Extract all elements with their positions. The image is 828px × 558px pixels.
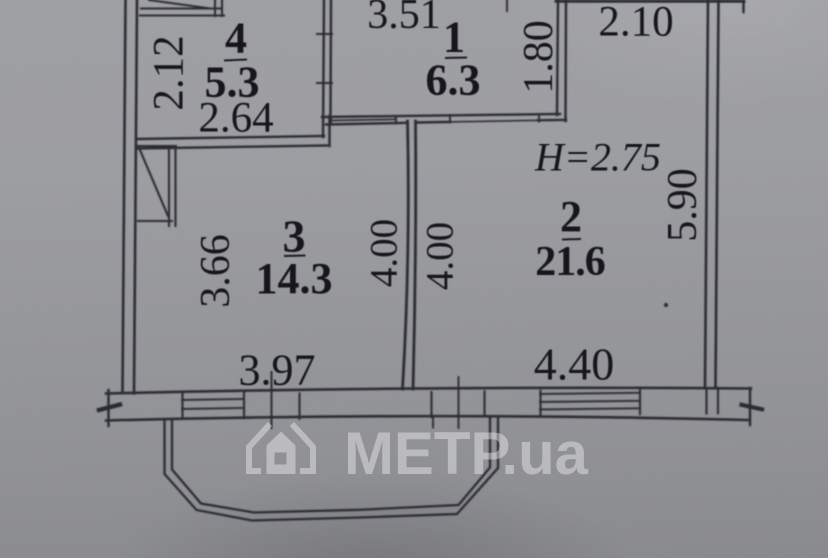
svg-text:4: 4 — [225, 14, 247, 63]
svg-text:3.66: 3.66 — [193, 234, 239, 308]
svg-text:3.51: 3.51 — [367, 0, 441, 38]
svg-text:МЕТР.ua: МЕТР.ua — [344, 420, 589, 487]
svg-text:6.3: 6.3 — [426, 56, 481, 105]
svg-text:1.80: 1.80 — [516, 20, 562, 94]
svg-text:5.90: 5.90 — [660, 168, 706, 242]
svg-text:4.00: 4.00 — [419, 222, 462, 290]
svg-text:2: 2 — [560, 192, 582, 241]
svg-text:H=2.75: H=2.75 — [534, 135, 661, 180]
svg-text:5.3: 5.3 — [205, 58, 260, 107]
svg-text:1: 1 — [443, 13, 465, 62]
svg-text:4.00: 4.00 — [363, 219, 406, 287]
svg-text:4.40: 4.40 — [534, 339, 615, 390]
svg-text:14.3: 14.3 — [256, 254, 333, 303]
svg-text:2.12: 2.12 — [146, 35, 193, 110]
svg-text:3.97: 3.97 — [239, 346, 316, 395]
svg-text:21.6: 21.6 — [535, 239, 605, 285]
svg-text:2.10: 2.10 — [598, 0, 673, 46]
